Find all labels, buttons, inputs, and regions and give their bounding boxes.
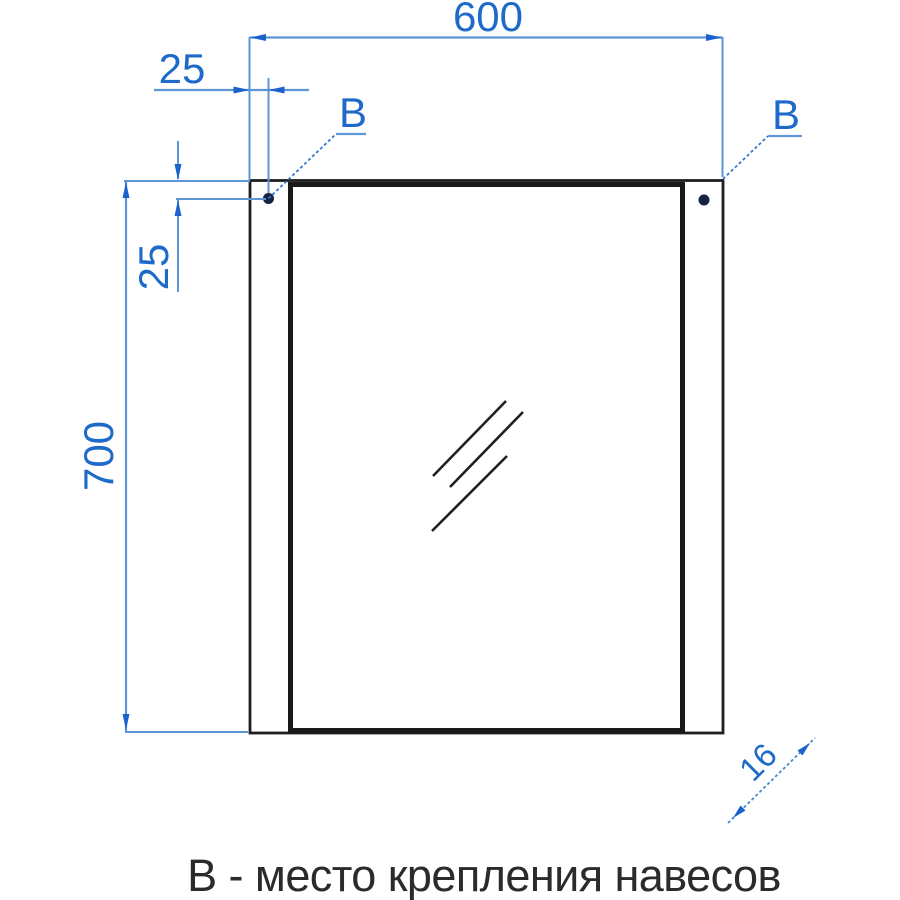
svg-text:700: 700 [75, 421, 122, 491]
svg-text:B: B [339, 89, 367, 136]
svg-text:600: 600 [453, 0, 523, 40]
svg-text:25: 25 [130, 244, 177, 291]
svg-text:B: B [772, 91, 800, 138]
svg-text:В - место крепления навесов: В - место крепления навесов [187, 850, 781, 900]
svg-text:25: 25 [159, 45, 206, 92]
